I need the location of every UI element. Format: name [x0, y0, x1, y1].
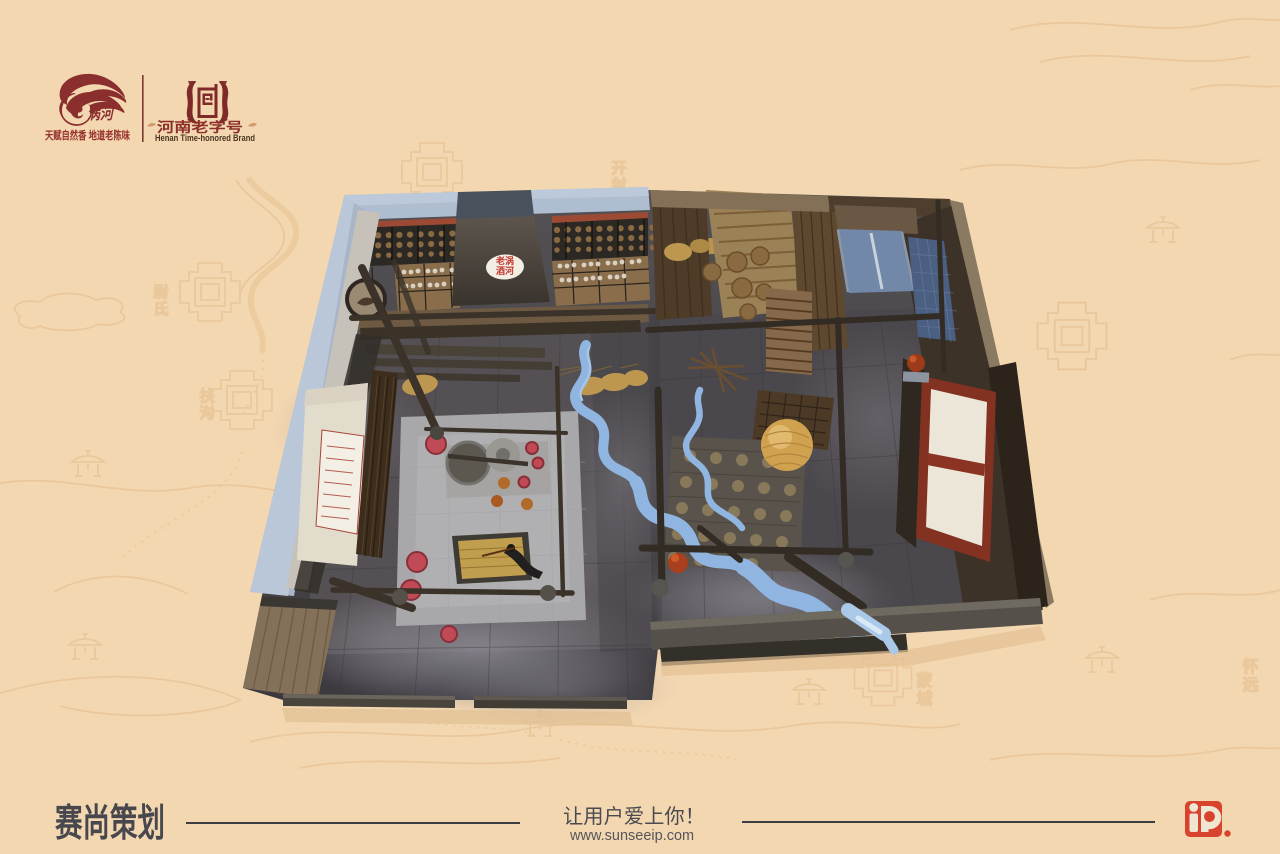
svg-text:天赋自然香 地道老陈味: 天赋自然香 地道老陈味	[45, 128, 130, 142]
svg-text:www.sunseeip.com: www.sunseeip.com	[569, 828, 694, 844]
svg-text:涡河: 涡河	[87, 106, 116, 123]
svg-text:赛尚策划: 赛尚策划	[55, 803, 165, 845]
svg-text:让用户爱上你！: 让用户爱上你！	[563, 805, 705, 828]
svg-text:Henan Time-honored Brand: Henan Time-honored Brand	[155, 133, 255, 144]
